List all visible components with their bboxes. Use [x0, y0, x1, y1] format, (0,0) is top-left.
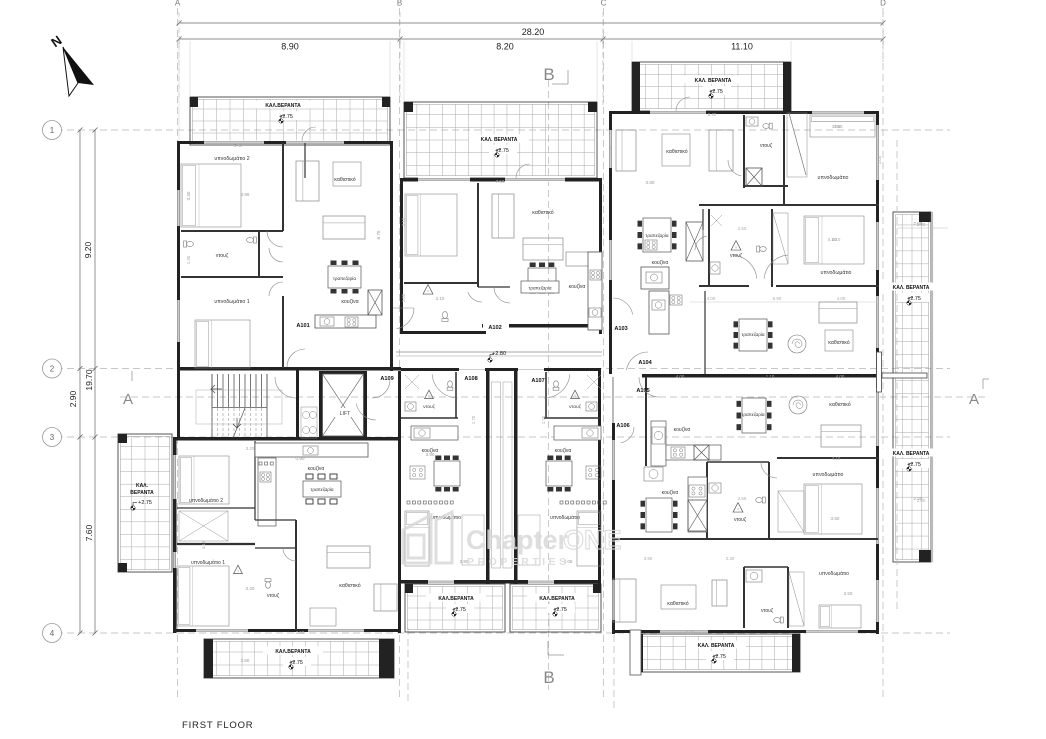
svg-text:A: A [969, 391, 979, 408]
svg-text:υπνοδωμάτιο 2: υπνοδωμάτιο 2 [189, 497, 223, 504]
svg-text:3.90: 3.90 [644, 556, 653, 561]
svg-text:+2.80: +2.80 [492, 351, 506, 357]
svg-text:1.70: 1.70 [471, 415, 476, 424]
svg-text:!: ! [574, 394, 575, 398]
svg-text:2: 2 [50, 364, 55, 373]
svg-text:4.10: 4.10 [832, 456, 841, 461]
svg-text:A106: A106 [616, 423, 629, 429]
svg-text:ντουζ: ντουζ [734, 517, 747, 523]
svg-text:+2.75: +2.75 [138, 500, 152, 506]
svg-text:καθιστικό: καθιστικό [334, 176, 356, 183]
svg-text:καθιστικό: καθιστικό [532, 209, 554, 216]
svg-text:4.15: 4.15 [201, 540, 206, 549]
svg-text:κουζίνα: κουζίνα [308, 466, 325, 472]
svg-text:ντουζ: ντουζ [569, 404, 582, 410]
svg-text:8.20: 8.20 [496, 42, 514, 52]
svg-text:3.60: 3.60 [241, 658, 250, 663]
svg-text:B: B [543, 65, 554, 84]
svg-text:A109: A109 [380, 376, 393, 382]
svg-text:3.10: 3.10 [401, 217, 406, 226]
svg-text:A: A [123, 391, 133, 408]
svg-text:κουζίνα: κουζίνα [569, 284, 586, 290]
svg-text:1.70: 1.70 [541, 415, 546, 424]
svg-text:υπνοδωμάτιο: υπνοδωμάτιο [818, 174, 849, 181]
svg-text:υπνοδωμάτιο: υπνοδωμάτιο [819, 570, 849, 577]
svg-text:3.30: 3.30 [186, 191, 191, 200]
svg-text:LIFT: LIFT [340, 411, 351, 417]
svg-text:3.10: 3.10 [436, 296, 445, 301]
svg-text:1.00: 1.00 [877, 155, 882, 164]
svg-text:4.00: 4.00 [707, 296, 716, 301]
svg-text:καθιστικό: καθιστικό [339, 582, 361, 589]
svg-text:καθιστικό: καθιστικό [829, 401, 851, 408]
svg-text:ΚΑΛ.ΒΕΡΑΝΤΑ: ΚΑΛ.ΒΕΡΑΝΤΑ [438, 596, 474, 602]
svg-text:A101: A101 [296, 323, 309, 329]
svg-text:υπνοδωμάτιο 1: υπνοδωμάτιο 1 [191, 559, 225, 566]
svg-text:υπνοδωμάτιο: υπνοδωμάτιο [550, 514, 580, 521]
svg-text:8.90: 8.90 [281, 42, 299, 52]
svg-text:3.60: 3.60 [686, 630, 695, 635]
svg-text:ΚΑΛ.ΒΕΡΑΝΤΑ: ΚΑΛ.ΒΕΡΑΝΤΑ [539, 596, 575, 602]
svg-text:1: 1 [50, 126, 55, 135]
svg-text:4.00: 4.00 [676, 374, 685, 379]
svg-text:ΚΑΛ.: ΚΑΛ. [136, 483, 149, 489]
svg-text:ΚΑΛ. ΒΕΡΑΝΤΑ: ΚΑΛ. ΒΕΡΑΝΤΑ [893, 285, 930, 291]
svg-text:A104: A104 [638, 360, 652, 366]
svg-text:A108: A108 [464, 376, 477, 382]
svg-text:ONE: ONE [563, 525, 622, 555]
svg-text:κουζίνα: κουζίνα [555, 448, 572, 454]
svg-text:!: ! [428, 394, 429, 398]
svg-text:2.00: 2.00 [914, 221, 923, 226]
svg-text:υπνοδωμάτιο 1: υπνοδωμάτιο 1 [214, 298, 249, 305]
svg-text:κουζίνα: κουζίνα [341, 299, 358, 305]
svg-text:υπνοδωμάτιο: υπνοδωμάτιο [813, 471, 844, 478]
svg-text:ΒΕΡΑΝΤΑ: ΒΕΡΑΝΤΑ [130, 490, 154, 496]
svg-text:5.90: 5.90 [773, 296, 782, 301]
svg-text:ΚΑΛ. ΒΕΡΑΝΤΑ: ΚΑΛ. ΒΕΡΑΝΤΑ [695, 78, 732, 84]
svg-text:2.00: 2.00 [401, 293, 406, 302]
svg-text:κουζίνα: κουζίνα [662, 490, 679, 496]
svg-text:9.20: 9.20 [83, 241, 93, 258]
svg-text:0.90: 0.90 [296, 456, 305, 461]
svg-text:!: ! [737, 508, 738, 512]
svg-text:B: B [397, 0, 402, 8]
svg-text:!: ! [735, 246, 736, 250]
svg-text:2.00: 2.00 [914, 496, 923, 501]
svg-text:3.50: 3.50 [832, 124, 841, 129]
svg-text:2.30: 2.30 [726, 556, 735, 561]
svg-text:5.40: 5.40 [708, 112, 717, 117]
svg-text:FIRST FLOOR: FIRST FLOOR [182, 720, 253, 731]
svg-text:3.80: 3.80 [646, 180, 655, 185]
svg-text:ΚΑΛ. ΒΕΡΑΝΤΑ: ΚΑΛ. ΒΕΡΑΝΤΑ [893, 451, 930, 457]
svg-text:B: B [543, 668, 554, 687]
svg-text:A103: A103 [614, 326, 627, 332]
svg-text:3: 3 [50, 433, 55, 442]
svg-text:28.20: 28.20 [522, 27, 545, 37]
svg-text:5.40: 5.40 [234, 143, 243, 148]
svg-text:A: A [175, 0, 181, 8]
svg-text:κουζίνα: κουζίνα [674, 427, 691, 433]
svg-text:ντουζ: ντουζ [216, 253, 229, 259]
svg-text:2.60: 2.60 [296, 630, 305, 635]
svg-text:ΚΑΛ. ΒΕΡΑΝΤΑ: ΚΑΛ. ΒΕΡΑΝΤΑ [698, 643, 735, 649]
svg-text:PROPERTIES: PROPERTIES [467, 556, 570, 568]
svg-text:D: D [880, 0, 886, 8]
svg-text:!: ! [237, 569, 238, 573]
svg-text:19.70: 19.70 [84, 369, 94, 391]
svg-text:ντουζ: ντουζ [760, 143, 773, 149]
svg-text:ντουζ: ντουζ [423, 404, 436, 410]
svg-text:καθιστικό: καθιστικό [667, 600, 689, 607]
svg-text:3.50: 3.50 [844, 591, 853, 596]
svg-text:4.00: 4.00 [836, 374, 845, 379]
svg-text:A107: A107 [531, 378, 544, 384]
svg-text:4.10: 4.10 [832, 237, 841, 242]
svg-text:ντουζ: ντουζ [267, 593, 280, 599]
svg-text:ΚΑΛ.ΒΕΡΑΝΤΑ: ΚΑΛ.ΒΕΡΑΝΤΑ [275, 649, 311, 655]
svg-text:!: ! [427, 290, 428, 294]
svg-text:καθιστικό: καθιστικό [666, 148, 688, 155]
svg-text:ΚΑΛ.ΒΕΡΑΝΤΑ: ΚΑΛ.ΒΕΡΑΝΤΑ [265, 103, 301, 109]
svg-text:3.20: 3.20 [246, 586, 255, 591]
svg-text:κουζίνα: κουζίνα [652, 260, 669, 266]
svg-text:4: 4 [50, 629, 55, 638]
svg-text:υπνοδωμάτιο: υπνοδωμάτιο [821, 269, 852, 276]
svg-text:καθιστικό: καθιστικό [828, 339, 850, 346]
svg-text:A102: A102 [488, 325, 501, 331]
svg-text:7.50: 7.50 [496, 179, 505, 184]
svg-text:2.90: 2.90 [68, 390, 78, 407]
svg-text:υπνοδωμάτιο 2: υπνοδωμάτιο 2 [214, 155, 249, 162]
svg-text:ντουζ: ντουζ [730, 253, 743, 259]
svg-text:3.50: 3.50 [831, 516, 840, 521]
svg-text:2.50: 2.50 [738, 496, 747, 501]
svg-text:6.75: 6.75 [376, 230, 381, 239]
svg-text:3.90: 3.90 [426, 452, 435, 457]
svg-text:3.20: 3.20 [246, 446, 255, 451]
svg-text:ντουζ: ντουζ [761, 608, 774, 614]
svg-text:3.95: 3.95 [241, 192, 250, 197]
svg-text:ΚΑΛ. ΒΕΡΑΝΤΑ: ΚΑΛ. ΒΕΡΑΝΤΑ [481, 137, 518, 143]
svg-text:C: C [601, 0, 607, 8]
svg-text:11.10: 11.10 [731, 42, 753, 52]
svg-text:7.60: 7.60 [84, 524, 94, 541]
svg-text:1.10: 1.10 [766, 374, 775, 379]
svg-text:3.80: 3.80 [608, 145, 613, 154]
svg-text:Chapter: Chapter [466, 525, 569, 555]
svg-text:2.50: 2.50 [738, 226, 747, 231]
svg-text:1.90: 1.90 [186, 255, 191, 264]
svg-text:4.00: 4.00 [837, 296, 846, 301]
